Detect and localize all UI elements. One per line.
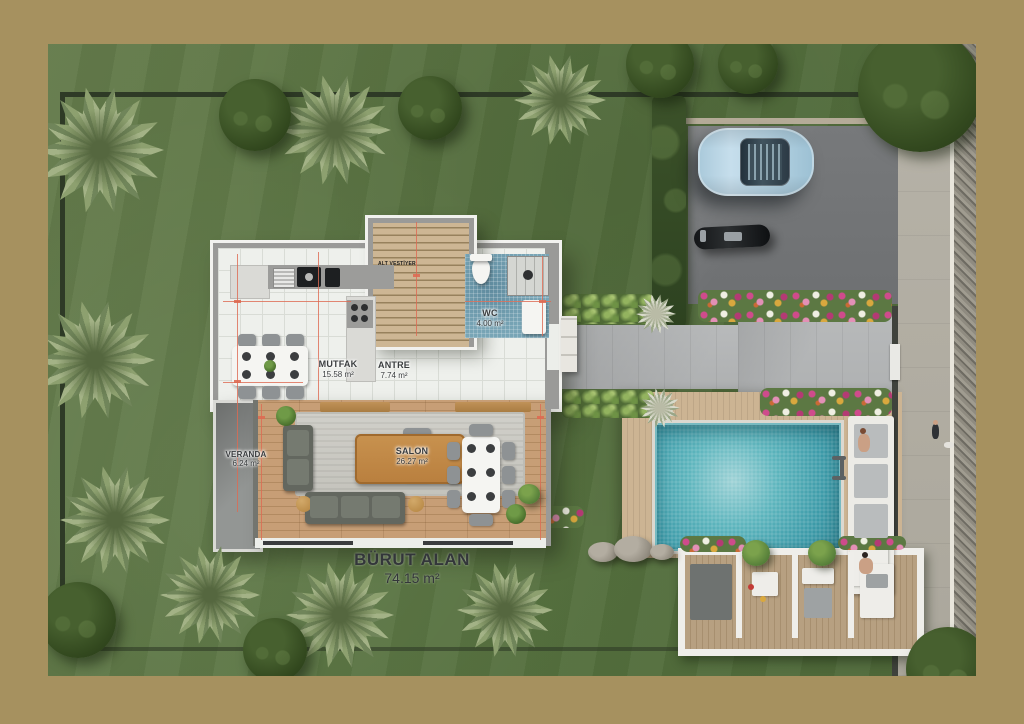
garden-gate [890,344,900,380]
place-setting [486,492,495,501]
pergola-post [736,552,742,638]
toilet-tank [470,254,492,261]
outdoor-lounge [804,588,832,618]
room-label-mutfak: MUTFAK 15.58 m² [307,359,369,379]
dimension-line [237,254,238,512]
person-walking [932,424,939,439]
chair [447,490,460,508]
window [423,541,513,545]
chair [502,466,515,484]
room-label-wc: WC 4.00 m² [460,308,520,328]
bush [243,618,307,676]
room-name: WC [460,308,520,319]
rock [588,542,618,562]
room-label-salon: SALON 26.27 m² [372,446,452,466]
rock [650,544,674,560]
room-label-veranda: VERANDA 6.24 m² [215,450,277,469]
sideboard [320,402,390,412]
chair [262,386,280,399]
rock [614,536,652,562]
person-sitting [859,558,873,574]
dimension-line [542,256,543,336]
plan-frame: ALT VESTİYER [0,0,1024,724]
dishwasher [273,268,295,288]
outdoor-sofa [802,568,834,584]
dimension-tick [258,416,265,419]
sun-lounger [854,504,888,538]
room-name: ANTRE [364,360,424,371]
chair [469,424,493,436]
dog [944,442,954,448]
sun-lounger [854,464,888,498]
room-area: 6.24 m² [215,459,277,468]
car-roof [748,144,782,180]
place-setting [467,492,476,501]
burner [361,315,368,322]
chair [447,466,460,484]
palm-tree [279,74,391,186]
burner [351,304,358,311]
chair [286,386,304,399]
palm-tree [514,54,606,146]
flower-bed-top [698,290,892,322]
bush [718,44,778,94]
burner [361,304,368,311]
place-setting [467,444,476,453]
room-area: 7.74 m² [364,371,424,380]
room-area: 4.00 m² [460,319,520,328]
bush [219,79,291,151]
place-setting [467,468,476,477]
indoor-plant [276,406,296,426]
entry-steps [561,316,577,372]
room-name: MUTFAK [307,359,369,370]
pergola-flowers-right [838,536,906,550]
dimension-tick [539,300,546,303]
pergola-post [792,552,798,638]
site-plan-render: ALT VESTİYER [48,44,976,676]
flower-bed-bottom [760,388,892,416]
sofa-cushion [287,430,309,456]
bush [398,76,462,140]
dimension-line [261,404,262,540]
palm-tree [48,300,155,420]
veranda-salon-wall [253,400,258,546]
driveway-curb [684,118,892,124]
chair [469,514,493,526]
person-head [933,420,938,425]
pergola-post [848,552,854,638]
room-area: 26.27 m² [372,457,452,466]
decor-yellow [760,596,766,602]
stair-note-label: ALT VESTİYER [378,261,416,267]
room-label-antre: ANTRE 7.74 m² [364,360,424,380]
oven [325,268,340,287]
palm-tree [60,465,170,575]
gross-area-value: 74.15 m² [312,570,512,587]
outdoor-table [752,572,778,596]
shower-head [523,270,533,280]
window [263,541,353,545]
pergola-flowers-left [680,536,746,552]
dimension-line [540,404,541,540]
outdoor-kitchen [690,564,732,620]
pergola-tree [808,540,836,566]
dimension-tick [537,416,544,419]
place-setting [486,468,495,477]
planting-strip-bottom [562,390,654,418]
swimming-pool [652,420,844,554]
hedge-row [652,96,686,328]
sofa-cushion [372,496,400,518]
palm-tree [160,545,260,645]
sofa-cushion [287,459,309,485]
palm-tree [48,86,164,214]
dimension-tick [413,274,420,277]
gross-area-title: BÜRUT ALAN [312,550,512,570]
gross-area-label: BÜRUT ALAN 74.15 m² [312,550,512,587]
room-area: 15.58 m² [307,370,369,379]
pergola-tree [742,540,770,566]
sideboard [455,402,531,412]
daybed-cushion [866,574,888,588]
sofa-cushion [341,496,369,518]
pool-ladder [840,458,844,480]
dimension-tick [234,300,241,303]
place-setting [290,370,299,379]
pouf [408,496,424,512]
perimeter-wall-top [60,92,892,97]
place-setting [290,352,299,361]
dimension-line [416,222,417,336]
decor-red [748,584,754,590]
room-name: SALON [372,446,452,457]
dimension-line [223,301,351,302]
place-setting [242,370,251,379]
motorcycle-engine [724,232,742,241]
perimeter-wall-bottom [60,647,700,651]
burner [351,315,358,322]
sofa-cushion [310,496,338,518]
kitchen-counter-corner [230,265,270,299]
shrub [518,484,540,504]
sink-basin [305,273,313,281]
chair [238,386,256,399]
chair [502,442,515,460]
person-lounging [858,434,870,452]
indoor-plant [506,504,526,524]
table-plant [264,360,276,372]
place-setting [486,444,495,453]
dimension-tick [234,380,241,383]
bush [626,44,694,98]
place-setting [242,352,251,361]
motorcycle-handlebar [700,230,706,242]
